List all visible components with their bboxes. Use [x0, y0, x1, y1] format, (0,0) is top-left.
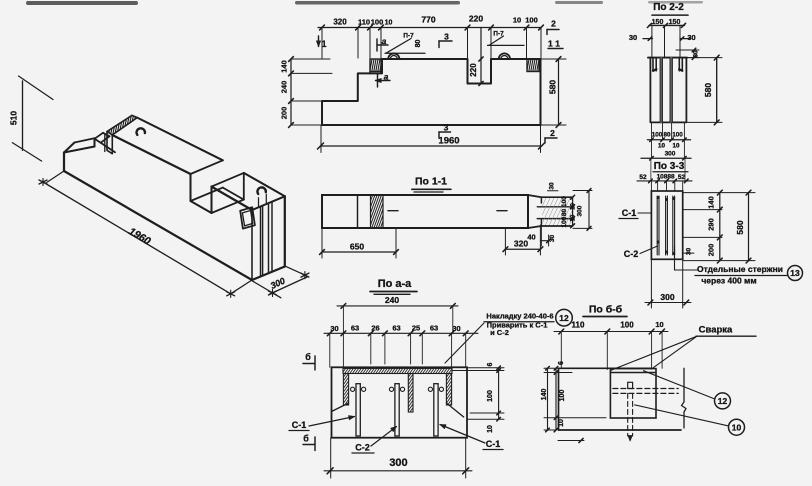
- svg-text:С-1: С-1: [622, 208, 637, 218]
- svg-text:30: 30: [549, 235, 556, 243]
- svg-text:10: 10: [672, 143, 680, 150]
- svg-text:Накладку 240-40-6: Накладку 240-40-6: [486, 312, 553, 321]
- svg-text:10: 10: [558, 419, 565, 427]
- svg-text:30: 30: [629, 33, 637, 42]
- svg-text:100: 100: [620, 321, 634, 330]
- svg-text:52: 52: [678, 174, 686, 181]
- svg-text:320: 320: [514, 239, 528, 249]
- svg-text:100: 100: [652, 132, 663, 139]
- svg-text:100: 100: [371, 18, 384, 27]
- svg-text:С-2: С-2: [624, 249, 639, 259]
- svg-text:580: 580: [548, 80, 558, 94]
- svg-text:30: 30: [549, 182, 556, 190]
- svg-text:a: a: [384, 72, 389, 82]
- svg-text:770: 770: [421, 15, 435, 25]
- svg-text:580: 580: [735, 220, 745, 234]
- svg-text:220: 220: [469, 14, 483, 24]
- svg-text:30: 30: [452, 324, 460, 333]
- svg-text:63: 63: [351, 324, 359, 333]
- svg-text:10: 10: [732, 422, 742, 432]
- svg-text:80: 80: [561, 209, 568, 217]
- svg-text:a: a: [382, 36, 387, 46]
- svg-text:100: 100: [561, 216, 568, 227]
- svg-text:10: 10: [487, 425, 494, 433]
- svg-text:По 3-3: По 3-3: [654, 161, 685, 172]
- svg-text:300: 300: [660, 292, 674, 302]
- svg-text:80: 80: [663, 131, 671, 138]
- svg-text:100: 100: [672, 132, 683, 139]
- svg-text:300: 300: [269, 276, 287, 291]
- svg-text:300: 300: [577, 205, 584, 216]
- svg-text:200: 200: [280, 107, 289, 120]
- svg-text:12: 12: [718, 396, 728, 406]
- svg-text:320: 320: [333, 18, 347, 27]
- svg-text:10: 10: [655, 320, 663, 329]
- svg-text:100: 100: [559, 390, 566, 402]
- svg-text:240: 240: [280, 81, 289, 94]
- svg-text:10: 10: [385, 20, 393, 27]
- svg-text:100: 100: [561, 196, 568, 207]
- svg-text:80: 80: [693, 50, 700, 58]
- svg-text:3: 3: [444, 123, 449, 133]
- svg-text:25: 25: [412, 324, 420, 333]
- svg-text:300: 300: [665, 150, 676, 157]
- svg-text:1960: 1960: [438, 136, 459, 147]
- svg-text:100: 100: [525, 16, 538, 25]
- svg-text:6: 6: [558, 361, 565, 365]
- svg-text:П-7: П-7: [403, 33, 414, 40]
- svg-text:2: 2: [551, 19, 556, 29]
- svg-text:б: б: [303, 434, 309, 444]
- svg-text:88: 88: [667, 174, 675, 181]
- svg-text:По б-б: По б-б: [589, 304, 623, 316]
- svg-text:150: 150: [669, 19, 681, 26]
- svg-text:3: 3: [444, 32, 449, 42]
- svg-text:80: 80: [415, 40, 422, 48]
- svg-text:б: б: [305, 352, 311, 362]
- svg-text:300: 300: [389, 457, 407, 469]
- svg-text:Сварка: Сварка: [699, 325, 733, 336]
- svg-text:через 400 мм: через 400 мм: [701, 276, 756, 286]
- svg-text:140: 140: [541, 389, 548, 401]
- svg-text:290: 290: [707, 218, 716, 231]
- svg-text:30: 30: [686, 248, 693, 256]
- svg-text:Отдельные стержни: Отдельные стержни: [697, 264, 783, 274]
- svg-text:650: 650: [350, 242, 364, 252]
- svg-text:40: 40: [527, 233, 535, 242]
- svg-text:510: 510: [9, 111, 19, 125]
- svg-text:6: 6: [487, 362, 494, 366]
- svg-text:11: 11: [548, 39, 563, 49]
- svg-text:С-1: С-1: [486, 439, 501, 449]
- svg-text:110: 110: [358, 18, 370, 27]
- svg-text:26: 26: [371, 324, 379, 333]
- svg-text:150: 150: [652, 19, 664, 26]
- svg-text:13: 13: [790, 268, 800, 278]
- svg-text:63: 63: [392, 324, 400, 333]
- svg-text:110: 110: [572, 321, 585, 330]
- svg-text:С-1: С-1: [292, 420, 307, 430]
- svg-text:240: 240: [385, 295, 399, 305]
- svg-text:140: 140: [707, 196, 716, 209]
- svg-text:52: 52: [639, 174, 647, 181]
- svg-text:100: 100: [487, 390, 494, 402]
- svg-text:63: 63: [430, 324, 438, 333]
- svg-text:200: 200: [707, 244, 716, 257]
- svg-text:580: 580: [703, 83, 713, 97]
- svg-text:и С-2: и С-2: [490, 328, 509, 337]
- svg-text:10: 10: [513, 16, 521, 25]
- svg-text:С-2: С-2: [355, 443, 370, 453]
- svg-text:30: 30: [687, 33, 695, 42]
- svg-text:10: 10: [658, 143, 666, 150]
- svg-text:По 2-2: По 2-2: [653, 2, 684, 13]
- svg-text:По а-а: По а-а: [378, 278, 412, 290]
- svg-text:140: 140: [280, 60, 289, 73]
- svg-text:12: 12: [559, 313, 569, 323]
- svg-text:По 1-1: По 1-1: [415, 176, 447, 188]
- svg-text:220: 220: [469, 63, 478, 77]
- svg-text:2: 2: [550, 128, 555, 138]
- svg-text:30: 30: [330, 324, 338, 333]
- svg-text:108: 108: [657, 174, 668, 181]
